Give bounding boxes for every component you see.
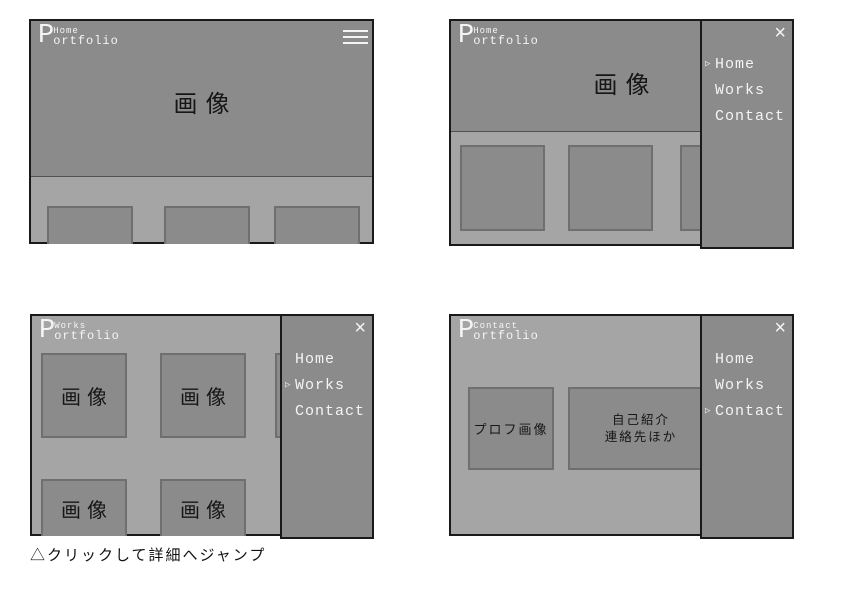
nav-menu: ▷ Home ▷ Works ▷ Contact [285, 346, 372, 424]
strip-thumbnail[interactable] [164, 206, 250, 244]
active-marker-icon: ▷ [705, 406, 715, 416]
menu-item-home[interactable]: ▷ Home [705, 51, 792, 77]
logo-initial: P [39, 321, 55, 342]
close-icon[interactable]: × [774, 317, 786, 339]
logo-initial: P [458, 26, 474, 47]
menu-item-label: Home [715, 351, 755, 368]
nav-sidebar: × ▷ Home ▷ Works ▷ Contact [700, 316, 794, 539]
logo-initial: P [38, 26, 54, 47]
menu-item-label: Home [715, 56, 755, 73]
thumbnail-label: 画像 [174, 494, 232, 523]
strip-thumbnail[interactable] [47, 206, 133, 244]
menu-item-label: Contact [715, 108, 785, 125]
hamburger-menu-icon[interactable] [343, 30, 368, 44]
about-block-placeholder: 自己紹介 連絡先ほか [568, 387, 714, 470]
work-thumbnail[interactable]: 画像 [41, 353, 127, 438]
work-thumbnail[interactable]: 画像 [41, 479, 127, 536]
menu-item-home[interactable]: ▷ Home [705, 346, 792, 372]
site-logo[interactable]: P Works ortfolio [39, 321, 120, 342]
menu-item-label: Works [715, 82, 765, 99]
site-logo[interactable]: P Home ortfolio [38, 26, 119, 47]
strip-thumbnail[interactable] [460, 145, 545, 231]
strip-thumbnail[interactable] [274, 206, 360, 244]
wireframe-panel-home-closed: P Home ortfolio 画像 [29, 19, 374, 244]
menu-item-home[interactable]: ▷ Home [285, 346, 372, 372]
logo-name-rest: ortfolio [53, 36, 119, 47]
site-logo[interactable]: P Contact ortfolio [458, 321, 539, 342]
nav-sidebar: × ▷ Home ▷ Works ▷ Contact [700, 21, 794, 249]
wireframe-panel-contact: P Contact ortfolio プロフ画像 自己紹介 連絡先ほか × ▷ … [449, 314, 794, 536]
menu-item-contact[interactable]: ▷ Contact [705, 398, 792, 424]
strip-thumbnail[interactable] [568, 145, 653, 231]
close-icon[interactable]: × [354, 317, 366, 339]
active-marker-icon: ▷ [285, 380, 295, 390]
profile-image-placeholder: プロフ画像 [468, 387, 554, 470]
thumbnail-label: 画像 [174, 381, 232, 410]
wireframe-panel-home-open: P Home ortfolio 画像 × ▷ Home ▷ Works ▷ Co… [449, 19, 794, 246]
menu-item-contact[interactable]: ▷ Contact [285, 398, 372, 424]
annotation-caption: △クリックして詳細へジャンプ [30, 544, 266, 565]
logo-initial: P [458, 321, 474, 342]
close-icon[interactable]: × [774, 22, 786, 44]
logo-name-rest: ortfolio [473, 36, 539, 47]
menu-item-works[interactable]: ▷ Works [705, 372, 792, 398]
nav-menu: ▷ Home ▷ Works ▷ Contact [705, 346, 792, 424]
menu-item-works[interactable]: ▷ Works [705, 77, 792, 103]
nav-sidebar: × ▷ Home ▷ Works ▷ Contact [280, 316, 374, 539]
menu-item-contact[interactable]: ▷ Contact [705, 103, 792, 129]
about-line: 自己紹介 [612, 412, 670, 429]
work-thumbnail[interactable]: 画像 [160, 479, 246, 536]
logo-name-rest: ortfolio [54, 331, 120, 342]
hero-image-placeholder: 画像 [31, 84, 372, 119]
menu-item-works[interactable]: ▷ Works [285, 372, 372, 398]
work-thumbnail[interactable]: 画像 [160, 353, 246, 438]
thumbnail-label: 画像 [55, 381, 113, 410]
thumbnail-label: 画像 [55, 494, 113, 523]
wireframe-panel-works: P Works ortfolio 画像 画像 画像 画像 × ▷ Home ▷ … [30, 314, 374, 536]
menu-item-label: Contact [715, 403, 785, 420]
menu-item-label: Home [295, 351, 335, 368]
site-logo[interactable]: P Home ortfolio [458, 26, 539, 47]
menu-item-label: Works [295, 377, 345, 394]
active-marker-icon: ▷ [705, 59, 715, 69]
about-line: 連絡先ほか [605, 429, 678, 446]
menu-item-label: Contact [295, 403, 365, 420]
menu-item-label: Works [715, 377, 765, 394]
logo-name-rest: ortfolio [473, 331, 539, 342]
profile-label: プロフ画像 [473, 419, 548, 438]
nav-menu: ▷ Home ▷ Works ▷ Contact [705, 51, 792, 129]
